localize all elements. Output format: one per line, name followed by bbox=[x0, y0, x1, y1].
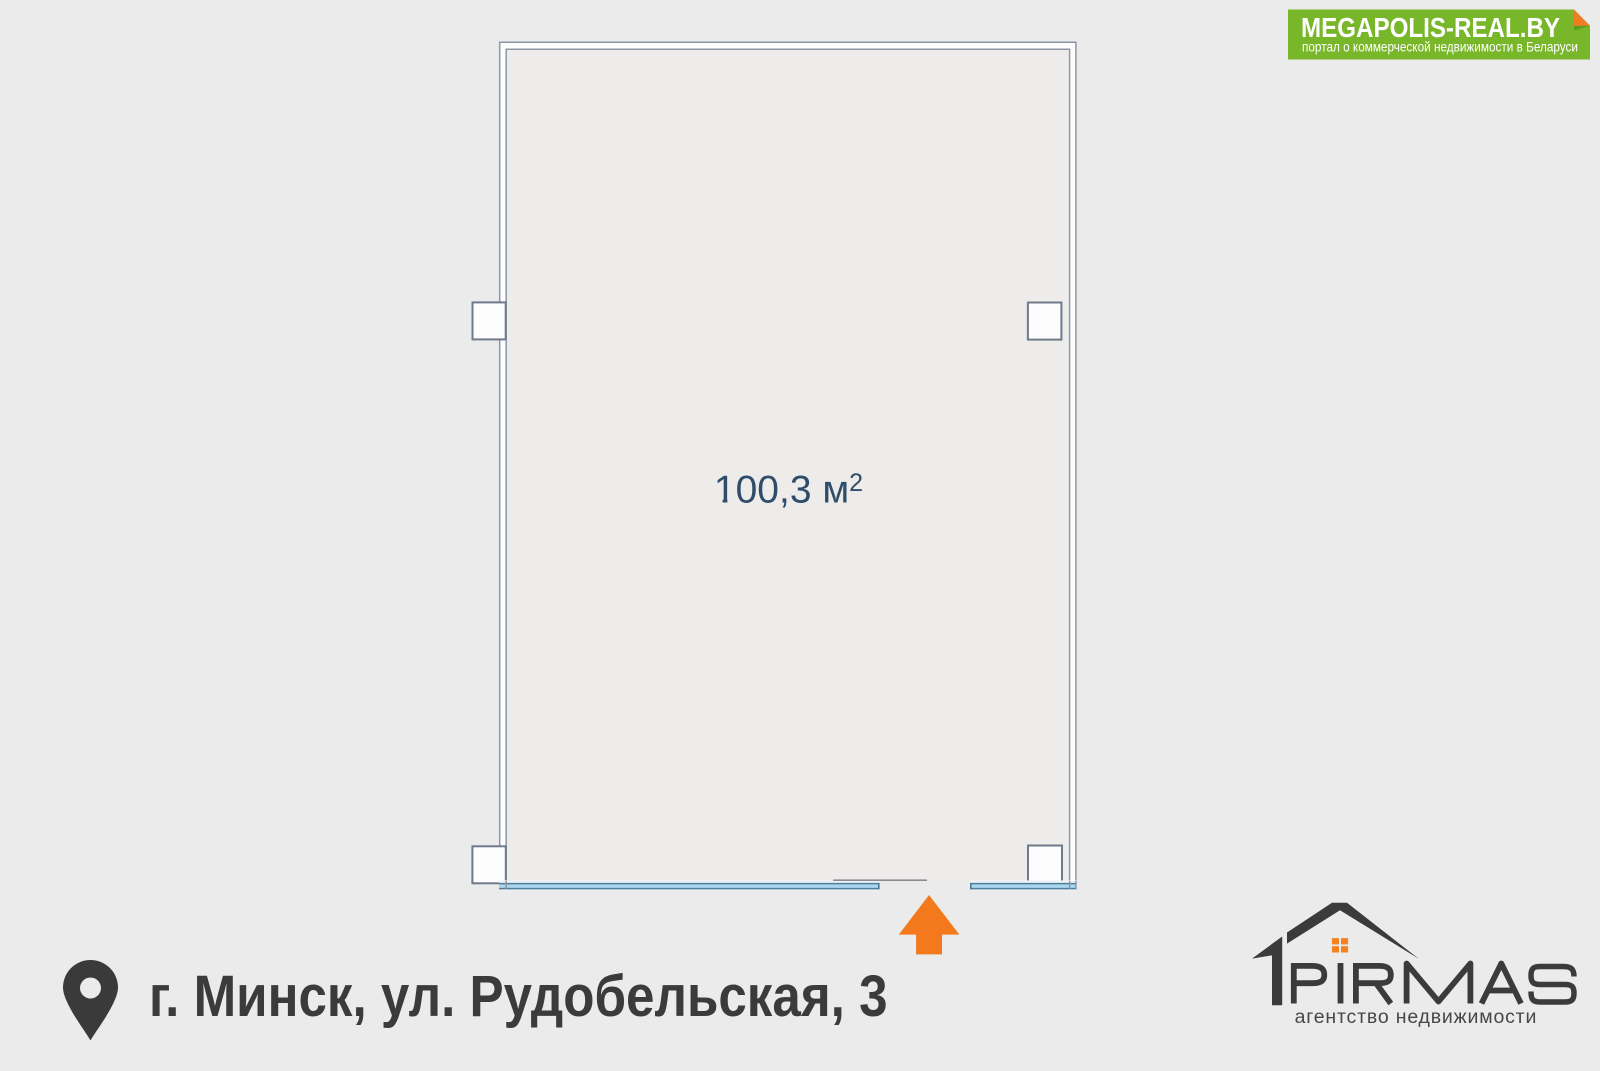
svg-text:агентство недвижимости: агентство недвижимости bbox=[1295, 1006, 1538, 1028]
svg-text:100,3 м2: 100,3 м2 bbox=[714, 469, 863, 512]
svg-text:г. Минск, ул. Рудобельская, 3: г. Минск, ул. Рудобельская, 3 bbox=[149, 964, 888, 1029]
svg-text:портал о коммерческой недвижим: портал о коммерческой недвижимости в Бел… bbox=[1302, 39, 1578, 55]
